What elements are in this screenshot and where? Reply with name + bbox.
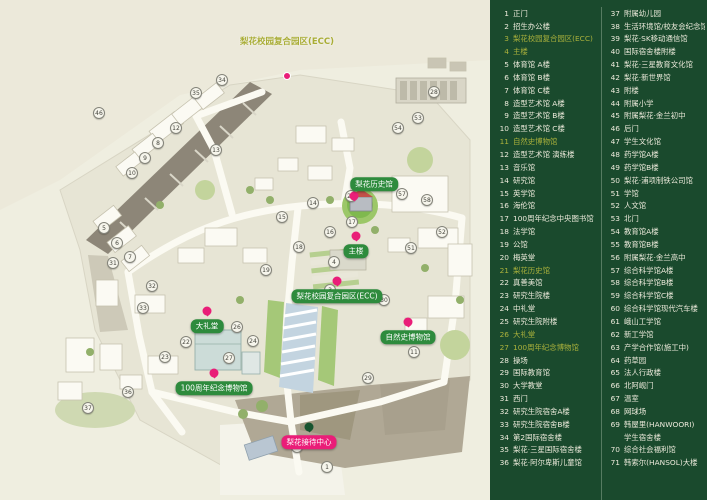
legend-item-number: 22 xyxy=(497,279,509,286)
legend-item: 17100周年纪念中央图书馆 xyxy=(497,213,601,226)
legend-item: 10造型艺术馆 C楼 xyxy=(497,123,601,136)
legend-item-label: 附属幼儿园 xyxy=(624,10,661,17)
legend-item-number: 35 xyxy=(497,446,509,453)
legend-item-label: 法学馆 xyxy=(513,228,535,235)
legend-item: 33研究生院宿舍B楼 xyxy=(497,418,601,431)
legend-item: 22真善美馆 xyxy=(497,277,601,290)
legend-item-number: 53 xyxy=(608,215,620,222)
legend-item-label: 梨花·阿尔卑斯儿童馆 xyxy=(513,459,582,466)
legend-item-number: 32 xyxy=(497,408,509,415)
legend-item-label: 公馆 xyxy=(513,241,528,248)
map-number-marker: 28 xyxy=(428,86,440,98)
map-number-marker: 9 xyxy=(139,152,151,164)
legend-item: 2招生办公楼 xyxy=(497,20,601,33)
legend-item-label: 学生宿舍楼 xyxy=(624,434,661,441)
legend-item: 5体育馆 A楼 xyxy=(497,58,601,71)
legend-item: 1正门 xyxy=(497,7,601,20)
legend-item-number: 57 xyxy=(608,267,620,274)
map-number-marker: 4 xyxy=(328,256,340,268)
legend-item-number: 58 xyxy=(608,279,620,286)
map-number-marker: 32 xyxy=(146,280,158,292)
legend-item-number: 43 xyxy=(608,87,620,94)
legend-item-label: 综合科学馆现代汽车楼 xyxy=(624,305,698,312)
legend-item: 25研究生院附楼 xyxy=(497,315,601,328)
legend-item-label: 西门 xyxy=(513,395,528,402)
legend-item-label: 招生办公楼 xyxy=(513,23,550,30)
legend-item-label: 海伦馆 xyxy=(513,202,535,209)
legend-item: 60综合科学馆现代汽车楼 xyxy=(608,302,705,315)
legend-item-number: 50 xyxy=(608,177,620,184)
legend-item-number: 38 xyxy=(608,23,620,30)
legend-item-label: 大礼堂 xyxy=(513,331,535,338)
legend-item-number: 5 xyxy=(497,61,509,68)
map-badge: 100周年纪念博物馆 xyxy=(176,381,253,395)
legend-item-label: 研究生院宿舍A楼 xyxy=(513,408,570,415)
map-pin-icon xyxy=(352,232,361,241)
legend-item: 26大礼堂 xyxy=(497,328,601,341)
map-pin-icon xyxy=(350,192,359,201)
campus-map: 梨花校园复合园区(ECC) 梨花历史馆主楼梨花校园复合园区(ECC)大礼堂自然史… xyxy=(0,0,490,500)
legend-item-label: 100周年纪念博物馆 xyxy=(513,344,579,351)
legend-item: 68网球场 xyxy=(608,405,705,418)
map-number-marker: 22 xyxy=(180,336,192,348)
map-pin-icon xyxy=(210,369,219,378)
legend-item-number: 71 xyxy=(608,459,620,466)
map-number-marker: 46 xyxy=(93,107,105,119)
legend-item-label: 药学馆B楼 xyxy=(624,164,659,171)
legend-item: 53北门 xyxy=(608,213,705,226)
legend-item: 31西门 xyxy=(497,392,601,405)
legend-item-label: 教育馆A楼 xyxy=(624,228,659,235)
legend-item: 66北阿岘门 xyxy=(608,379,705,392)
legend-item-label: 音乐馆 xyxy=(513,164,535,171)
map-number-marker: 5 xyxy=(98,222,110,234)
map-number-marker: 8 xyxy=(152,137,164,149)
legend-item-label: 附楼 xyxy=(624,87,639,94)
map-badge: 梨花校园复合园区(ECC) xyxy=(291,289,382,303)
legend-item: 29国际教育馆 xyxy=(497,367,601,380)
legend-item-number: 54 xyxy=(608,228,620,235)
legend-item-number: 28 xyxy=(497,357,509,364)
legend-item: 57综合科学馆A楼 xyxy=(608,264,705,277)
legend-item: 42梨花·新世界馆 xyxy=(608,71,705,84)
legend-item: 19公馆 xyxy=(497,238,601,251)
map-number-marker: 51 xyxy=(405,242,417,254)
legend-item-label: 研究生院附楼 xyxy=(513,318,557,325)
legend-item-label: 梨花·SK移动通信馆 xyxy=(624,35,688,42)
legend-item-number: 24 xyxy=(497,305,509,312)
legend-item: 59综合科学馆C楼 xyxy=(608,290,705,303)
legend-item-number: 29 xyxy=(497,369,509,376)
legend-item: 70综合社会福利馆 xyxy=(608,444,705,457)
legend-item-label: 附属梨花·金兰高中 xyxy=(624,254,685,261)
legend-item: 23研究生院楼 xyxy=(497,290,601,303)
map-pin-icon xyxy=(203,307,212,316)
legend-item: 67温室 xyxy=(608,392,705,405)
map-number-marker: 19 xyxy=(260,264,272,276)
legend-item-number: 7 xyxy=(497,87,509,94)
legend-item: 51学馆 xyxy=(608,187,705,200)
map-badge: 主楼 xyxy=(344,244,369,258)
legend-item: 36梨花·阿尔卑斯儿童馆 xyxy=(497,457,601,470)
legend-item-label: 梨花校园复合园区(ECC) xyxy=(513,35,593,42)
legend-item-number: 14 xyxy=(497,177,509,184)
legend-item: 38生活环境馆/校友会纪念馆 xyxy=(608,20,705,33)
map-number-marker: 33 xyxy=(137,302,149,314)
legend-item-label: 附属梨花·金兰初中 xyxy=(624,112,685,119)
legend-item-label: 温室 xyxy=(624,395,639,402)
map-badge: 梨花历史馆 xyxy=(350,177,398,191)
legend-item: 27100周年纪念博物馆 xyxy=(497,341,601,354)
legend-item: 15英学馆 xyxy=(497,187,601,200)
legend-item: 8造型艺术馆 A楼 xyxy=(497,97,601,110)
legend-item-number: 49 xyxy=(608,164,620,171)
legend-item-label: 学馆 xyxy=(624,190,639,197)
map-number-marker: 11 xyxy=(408,346,420,358)
legend-item-label: 学生文化馆 xyxy=(624,138,661,145)
legend-item-number: 70 xyxy=(608,446,620,453)
legend-item-number: 36 xyxy=(497,459,509,466)
legend-item-number: 2 xyxy=(497,23,509,30)
map-number-marker: 35 xyxy=(190,87,202,99)
legend-item-number: 63 xyxy=(608,344,620,351)
legend-item-label: 体育馆 A楼 xyxy=(513,61,550,68)
legend-item: 7体育馆 C楼 xyxy=(497,84,601,97)
legend-item-label: 正门 xyxy=(513,10,528,17)
legend-item: 58综合科学馆B楼 xyxy=(608,277,705,290)
legend-item: 43附楼 xyxy=(608,84,705,97)
legend-item-label: 英学馆 xyxy=(513,190,535,197)
legend-item: 52人文馆 xyxy=(608,200,705,213)
legend-item-number: 21 xyxy=(497,267,509,274)
legend-item-label: 北阿岘门 xyxy=(624,382,654,389)
legend-item-number: 31 xyxy=(497,395,509,402)
legend-item-number: 27 xyxy=(497,344,509,351)
legend-item-number: 56 xyxy=(608,254,620,261)
legend-item: 69韩屋里(HANWOORI) xyxy=(608,418,705,431)
legend-item-number: 51 xyxy=(608,190,620,197)
legend-item-label: 研究生院楼 xyxy=(513,292,550,299)
map-number-marker: 1 xyxy=(321,461,333,473)
map-number-marker: 52 xyxy=(436,226,448,238)
legend-item-number: 19 xyxy=(497,241,509,248)
legend-item-label: 综合科学馆C楼 xyxy=(624,292,674,299)
legend-item-label: 造型艺术馆 C楼 xyxy=(513,125,565,132)
legend-item-number: 46 xyxy=(608,125,620,132)
legend-item-label: 后门 xyxy=(624,125,639,132)
legend-item-label: 操场 xyxy=(513,357,528,364)
map-number-marker: 12 xyxy=(170,122,182,134)
legend-item-number: 33 xyxy=(497,421,509,428)
map-badge: 大礼堂 xyxy=(191,319,224,333)
legend-item-number: 4 xyxy=(497,48,509,55)
legend-item-label: 100周年纪念中央图书馆 xyxy=(513,215,594,222)
legend-item-number: 26 xyxy=(497,331,509,338)
legend-column-1: 1正门2招生办公楼3梨花校园复合园区(ECC)4主楼5体育馆 A楼6体育馆 B楼… xyxy=(497,7,601,500)
legend-item: 71韩索尔(HANSOL)大楼 xyxy=(608,457,705,470)
legend-item-number: 1 xyxy=(497,10,509,17)
legend-item-label: 梅英堂 xyxy=(513,254,535,261)
legend-item-label: 综合科学馆A楼 xyxy=(624,267,673,274)
legend-item: 46后门 xyxy=(608,123,705,136)
map-number-marker: 7 xyxy=(124,251,136,263)
legend-item-label: 生活环境馆/校友会纪念馆 xyxy=(624,23,705,30)
legend-item: 62新工学馆 xyxy=(608,328,705,341)
legend-item-number: 15 xyxy=(497,190,509,197)
legend-item-label: 研究生院宿舍B楼 xyxy=(513,421,570,428)
legend-item-number: 60 xyxy=(608,305,620,312)
legend-item: 34第2国际宿舍楼 xyxy=(497,431,601,444)
legend-item-label: 附属小学 xyxy=(624,100,654,107)
legend-item-number: 47 xyxy=(608,138,620,145)
legend-item: 18法学馆 xyxy=(497,225,601,238)
legend-item-label: 法人行政楼 xyxy=(624,369,661,376)
legend-item: 24中礼堂 xyxy=(497,302,601,315)
map-number-marker: 26 xyxy=(231,321,243,333)
legend-item-number: 12 xyxy=(497,151,509,158)
map-badge: 梨花接待中心 xyxy=(282,435,337,449)
legend-item: 49药学馆B楼 xyxy=(608,161,705,174)
legend-item: 4主楼 xyxy=(497,46,601,59)
legend-item-number: 45 xyxy=(608,112,620,119)
legend-item-number: 62 xyxy=(608,331,620,338)
legend-item-label: 北门 xyxy=(624,215,639,222)
legend-item: 28操场 xyxy=(497,354,601,367)
legend-item-label: 梨花·浦项制铁公司馆 xyxy=(624,177,693,184)
legend-item-number: 9 xyxy=(497,112,509,119)
legend-item-number: 39 xyxy=(608,35,620,42)
legend-item-label: 新工学馆 xyxy=(624,331,654,338)
map-number-marker: 36 xyxy=(122,386,134,398)
map-number-marker: 24 xyxy=(247,335,259,347)
legend-item: 11自然史博物馆 xyxy=(497,135,601,148)
legend-item-label: 网球场 xyxy=(624,408,646,415)
legend-item-number: 41 xyxy=(608,61,620,68)
map-number-marker: 58 xyxy=(421,194,433,206)
map-number-marker: 16 xyxy=(324,226,336,238)
legend-item-number: 20 xyxy=(497,254,509,261)
legend-item: 35梨花·三星国际宿舍楼 xyxy=(497,444,601,457)
legend-item-label: 国际宿舍楼附楼 xyxy=(624,48,676,55)
map-number-marker: 23 xyxy=(159,351,171,363)
legend-item-number: 23 xyxy=(497,292,509,299)
legend-item-label: 体育馆 C楼 xyxy=(513,87,550,94)
legend-item-number: 65 xyxy=(608,369,620,376)
map-number-marker: 10 xyxy=(126,167,138,179)
legend-item-number: 59 xyxy=(608,292,620,299)
map-pin-icon xyxy=(305,423,314,432)
legend-item-number: 52 xyxy=(608,202,620,209)
legend-item-label: 主楼 xyxy=(513,48,528,55)
legend-item-number: 37 xyxy=(608,10,620,17)
legend-item-number: 42 xyxy=(608,74,620,81)
legend-item-number: 17 xyxy=(497,215,509,222)
map-number-marker: 14 xyxy=(307,197,319,209)
legend-item-label: 药草园 xyxy=(624,357,646,364)
legend-item-label: 梨花·新世界馆 xyxy=(624,74,671,81)
legend-item-label: 国际教育馆 xyxy=(513,369,550,376)
legend-item-number: 69 xyxy=(608,421,620,428)
legend-item: 45附属梨花·金兰初中 xyxy=(608,110,705,123)
legend-item: 32研究生院宿舍A楼 xyxy=(497,405,601,418)
legend-item-number: 18 xyxy=(497,228,509,235)
legend-item-number: 16 xyxy=(497,202,509,209)
map-number-marker: 18 xyxy=(293,241,305,253)
legend-item-number: 61 xyxy=(608,318,620,325)
map-number-marker: 31 xyxy=(107,257,119,269)
legend-panel: 1正门2招生办公楼3梨花校园复合园区(ECC)4主楼5体育馆 A楼6体育馆 B楼… xyxy=(490,0,707,500)
legend-item-label: 造型艺术馆 B楼 xyxy=(513,112,565,119)
map-number-marker: 27 xyxy=(223,352,235,364)
legend-item: 16海伦馆 xyxy=(497,200,601,213)
legend-item-number: 64 xyxy=(608,357,620,364)
legend-item-label: 产学合作馆(施工中) xyxy=(624,344,689,351)
map-number-marker: 17 xyxy=(346,216,358,228)
map-pin-icon xyxy=(404,318,413,327)
legend-item: 9造型艺术馆 B楼 xyxy=(497,110,601,123)
legend-item-number: 30 xyxy=(497,382,509,389)
legend-item: 41梨花·三星教育文化馆 xyxy=(608,58,705,71)
legend-item-number: 48 xyxy=(608,151,620,158)
legend-item-label: 真善美馆 xyxy=(513,279,543,286)
map-number-marker: 34 xyxy=(216,74,228,86)
legend-item-label: 大学教堂 xyxy=(513,382,543,389)
legend-item-number: 68 xyxy=(608,408,620,415)
map-number-marker: 13 xyxy=(210,144,222,156)
legend-item: 55教育馆B楼 xyxy=(608,238,705,251)
legend-item-label: 教育馆B楼 xyxy=(624,241,659,248)
legend-item: 47学生文化馆 xyxy=(608,135,705,148)
legend-item-label: 第2国际宿舍楼 xyxy=(513,434,562,441)
legend-item-number: 11 xyxy=(497,138,509,145)
legend-item: 64药草园 xyxy=(608,354,705,367)
legend-item: 61峨山工学馆 xyxy=(608,315,705,328)
legend-item-label: 综合社会福利馆 xyxy=(624,446,676,453)
legend-item: 14研究馆 xyxy=(497,174,601,187)
legend-item-label: 中礼堂 xyxy=(513,305,535,312)
legend-item: 6体育馆 B楼 xyxy=(497,71,601,84)
legend-item-number: 67 xyxy=(608,395,620,402)
legend-item: 12造型艺术馆 演练楼 xyxy=(497,148,601,161)
map-number-marker: 37 xyxy=(82,402,94,414)
legend-item: 50梨花·浦项制铁公司馆 xyxy=(608,174,705,187)
legend-item-number: 13 xyxy=(497,164,509,171)
legend-item-label: 梨花历史馆 xyxy=(513,267,550,274)
map-badge: 自然史博物馆 xyxy=(381,330,436,344)
legend-item: 48药学馆A楼 xyxy=(608,148,705,161)
map-number-marker: 29 xyxy=(362,372,374,384)
legend-item: 3梨花校园复合园区(ECC) xyxy=(497,33,601,46)
ecc-marker-dot xyxy=(283,72,291,80)
legend-item-number: 25 xyxy=(497,318,509,325)
legend-item: 13音乐馆 xyxy=(497,161,601,174)
legend-item-label: 综合科学馆B楼 xyxy=(624,279,673,286)
legend-column-2: 37附属幼儿园38生活环境馆/校友会纪念馆39梨花·SK移动通信馆40国际宿舍楼… xyxy=(601,7,705,500)
map-pin-icon xyxy=(333,277,342,286)
legend-item-number: 40 xyxy=(608,48,620,55)
legend-item: 65法人行政楼 xyxy=(608,367,705,380)
legend-item-number: 34 xyxy=(497,434,509,441)
legend-item-number: 3 xyxy=(497,35,509,42)
legend-item: 20梅英堂 xyxy=(497,251,601,264)
campus-map-page: 梨花校园复合园区(ECC) 梨花历史馆主楼梨花校园复合园区(ECC)大礼堂自然史… xyxy=(0,0,707,500)
legend-item-label: 梨花·三星国际宿舍楼 xyxy=(513,446,582,453)
map-number-marker: 6 xyxy=(111,237,123,249)
legend-item-number: 6 xyxy=(497,74,509,81)
legend-item-label: 研究馆 xyxy=(513,177,535,184)
legend-item: 44附属小学 xyxy=(608,97,705,110)
map-number-marker: 57 xyxy=(396,188,408,200)
legend-item-label: 韩索尔(HANSOL)大楼 xyxy=(624,459,698,466)
legend-item: 63产学合作馆(施工中) xyxy=(608,341,705,354)
ecc-top-label: 梨花校园复合园区(ECC) xyxy=(240,35,334,47)
legend-item: 56附属梨花·金兰高中 xyxy=(608,251,705,264)
legend-item: 21梨花历史馆 xyxy=(497,264,601,277)
legend-item: 54教育馆A楼 xyxy=(608,225,705,238)
legend-item-label: 造型艺术馆 A楼 xyxy=(513,100,565,107)
legend-item: 30大学教堂 xyxy=(497,379,601,392)
legend-item: 39梨花·SK移动通信馆 xyxy=(608,33,705,46)
legend-item-number: 8 xyxy=(497,100,509,107)
map-number-marker: 15 xyxy=(276,211,288,223)
legend-item-label: 体育馆 B楼 xyxy=(513,74,550,81)
map-number-marker: 54 xyxy=(392,122,404,134)
legend-item-number: 55 xyxy=(608,241,620,248)
legend-item-label: 自然史博物馆 xyxy=(513,138,557,145)
legend-item-number: 10 xyxy=(497,125,509,132)
legend-item: 40国际宿舍楼附楼 xyxy=(608,46,705,59)
legend-item: 37附属幼儿园 xyxy=(608,7,705,20)
legend-item-number: 66 xyxy=(608,382,620,389)
legend-item-label: 药学馆A楼 xyxy=(624,151,659,158)
legend-item-label: 韩屋里(HANWOORI) xyxy=(624,421,694,428)
legend-item-label: 梨花·三星教育文化馆 xyxy=(624,61,693,68)
legend-item-number: 44 xyxy=(608,100,620,107)
map-number-marker: 53 xyxy=(412,112,424,124)
legend-item-label: 峨山工学馆 xyxy=(624,318,661,325)
legend-item-label: 造型艺术馆 演练楼 xyxy=(513,151,574,158)
legend-item: 学生宿舍楼 xyxy=(608,431,705,444)
legend-item-label: 人文馆 xyxy=(624,202,646,209)
